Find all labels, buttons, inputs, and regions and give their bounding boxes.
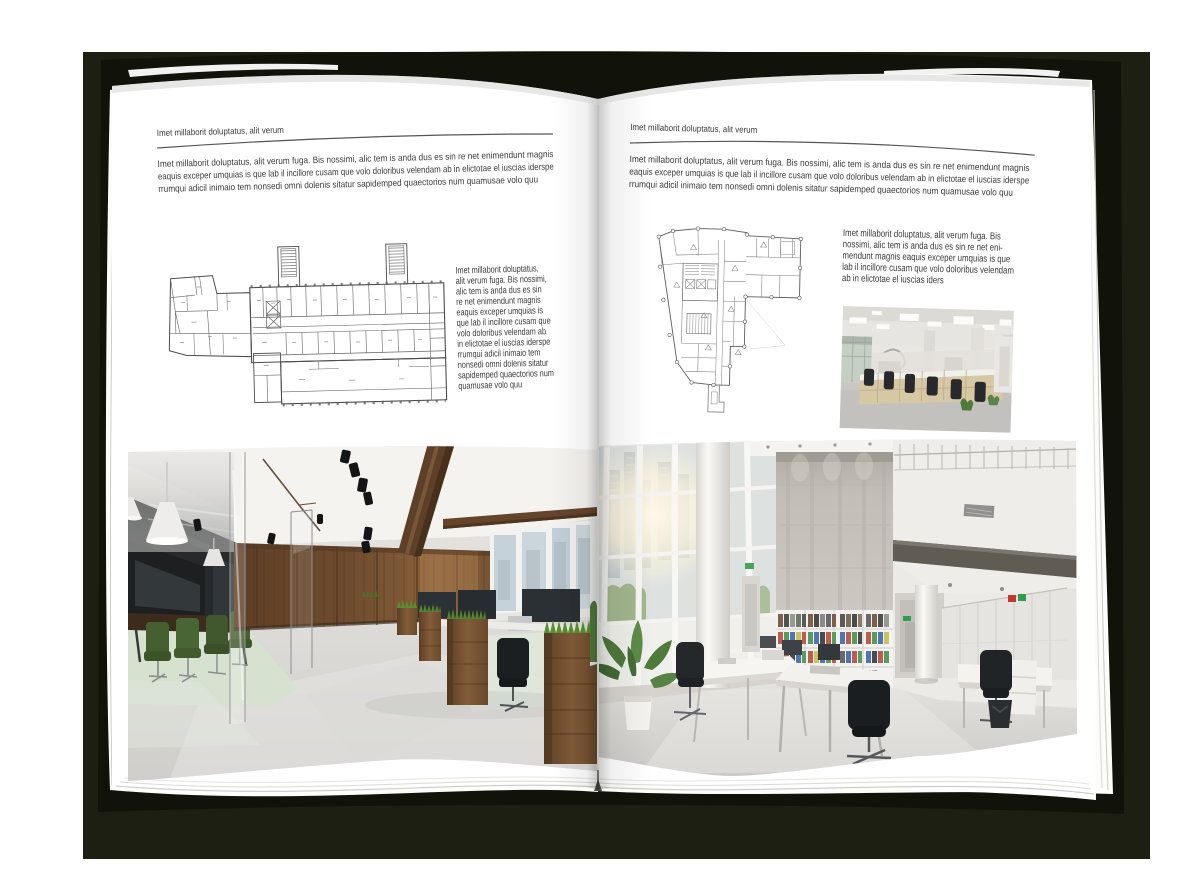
svg-text:quamusae volo quu: quamusae volo quu (458, 378, 522, 391)
svg-text:ab in elictotae el iuscias ide: ab in elictotae el iuscias iders (842, 272, 945, 285)
